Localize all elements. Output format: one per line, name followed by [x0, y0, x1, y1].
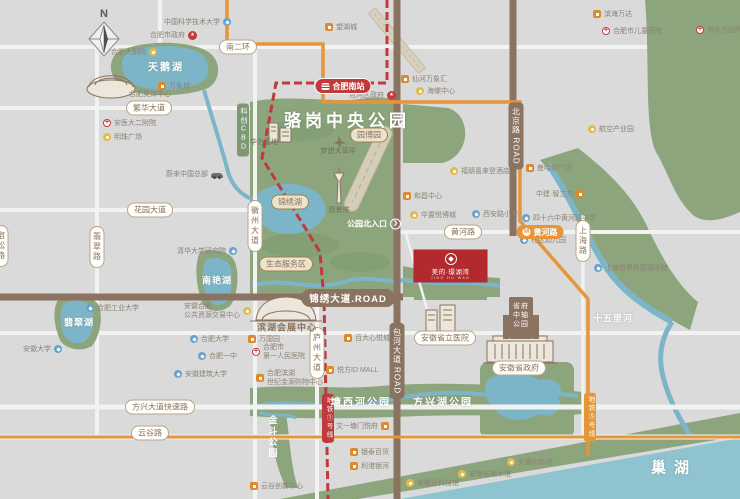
yellow-poi-icon	[406, 479, 414, 487]
hosp-poi-icon	[103, 119, 111, 127]
label-dream-lawn: 梦想大草坪	[321, 146, 356, 156]
orange-poi-icon	[403, 192, 411, 200]
orange-poi-icon	[248, 335, 256, 343]
government-building-sketch	[483, 336, 557, 363]
blue-poi-icon	[190, 335, 198, 343]
badge-baohe-avenue: 包河大道 ROAD	[390, 323, 405, 399]
poi-anhui-innovation-museum: 安徽创新馆	[507, 457, 553, 467]
hosp-poi-icon	[602, 27, 610, 35]
badge-yungu-road: 云谷路	[131, 426, 169, 441]
yellow-poi-icon	[450, 167, 458, 175]
poi-mingzhu-square: 明珠广场	[103, 132, 142, 142]
poi-boe-hospital: 京东方医院	[696, 25, 740, 35]
badge-metro-line5: 地铁⑤号线	[584, 393, 596, 442]
blue-poi-icon	[54, 345, 62, 353]
hosp-poi-icon	[696, 26, 704, 34]
label-tangxihe-park: 塘西河公园	[331, 394, 391, 409]
badge-fanhua-avenue: 繁华大道	[126, 101, 172, 116]
badge-hefei-south-station: 合肥南站	[315, 78, 372, 94]
yellow-poi-icon	[149, 48, 157, 56]
poi-baida-xinyuecheng: 百大心悦城	[344, 333, 390, 343]
hosp-poi-icon	[252, 348, 260, 356]
poi-public-resource-center: 安徽合肥公共资源交易中心	[184, 302, 251, 320]
poi-ustc: 中国科学技术大学	[164, 17, 231, 27]
orange-poi-icon	[526, 164, 534, 172]
car-poi-icon	[211, 173, 223, 178]
poi-anhui-university: 安徽大学	[23, 344, 62, 354]
orange-poi-icon	[158, 82, 166, 90]
poi-binhu-shopping-mall: 合肥滨湖世纪金源购物中心	[256, 369, 323, 387]
poi-tsinghua-institute: 清华大学研究院	[177, 246, 237, 256]
orange-poi-icon	[350, 448, 358, 456]
poi-anhui-jianzhu-university: 安徽建筑大学	[174, 369, 227, 379]
label-feicuihu-lake: 翡翠湖	[64, 316, 94, 329]
poi-anhui-art-museum: 安徽省美术馆	[458, 469, 511, 479]
blue-poi-icon	[472, 210, 480, 218]
poi-hechang-center: 和昌中心	[403, 191, 442, 201]
project-name: 美的·璟湖湾	[432, 266, 470, 276]
poi-shanghai-foreign-language-school: 上海世界外国语学校	[594, 263, 668, 273]
poi-anhui-science-museum: 安徽省科技馆	[406, 478, 459, 488]
poi-anyi-2nd-hospital: 安医大二附院	[103, 118, 156, 128]
yellow-poi-icon	[243, 307, 251, 315]
orange-poi-icon	[250, 482, 258, 490]
project-logo-icon	[445, 253, 457, 265]
blue-poi-icon	[174, 370, 182, 378]
orange-poi-icon	[350, 462, 358, 470]
blue-poi-icon	[223, 18, 231, 26]
poi-yuefang-id-mall: 悦方ID MALL	[326, 365, 378, 375]
badge-feicui-road: 翡翠路	[90, 226, 105, 268]
badge-provincial-government: 安徽省政府	[492, 361, 546, 376]
orange-poi-icon	[326, 366, 334, 374]
poi-hefei-university: 合肥大学	[190, 334, 229, 344]
poi-wanghucheng: 望湖城	[325, 22, 357, 32]
badge-beijing-road: 北京路 ROAD	[509, 102, 524, 169]
badge-metro-huanghe-station: 黄河路	[517, 225, 564, 239]
orange-poi-icon	[325, 23, 333, 31]
poi-hefei-univ-of-tech: 合肥工业大学	[86, 303, 139, 313]
poi-children-hospital: 合肥市儿童医院	[602, 26, 662, 36]
compass-n-label: N	[84, 8, 124, 20]
orange-poi-icon	[256, 374, 264, 382]
badge-shanghai-road: 上海路	[576, 220, 591, 262]
poi-aviation-industry-park: 航空产业园	[588, 124, 634, 134]
badge-susong-road: 宿松路	[0, 225, 9, 267]
badge-huayuan-avenue: 花园大道	[127, 203, 173, 218]
poi-zhongjian-cube: 中建·智立方	[536, 189, 584, 199]
blue-poi-icon	[198, 352, 206, 360]
label-expo-center: 滨湖会展中心	[257, 321, 317, 334]
poi-ligang-galaxy: 利港银河	[350, 461, 389, 471]
yellow-poi-icon	[588, 125, 596, 133]
poi-hefei-government: 合肥市政府	[150, 30, 197, 40]
poi-nio-china-hq: 蔚来中国总部	[166, 169, 223, 179]
badge-kechuang-cbd: 科创CBD	[237, 104, 249, 157]
badge-huanghe-road: 黄河路	[444, 225, 482, 240]
label-shiwulihe-river: 十五里河	[593, 312, 633, 325]
badge-provincial-hospital: 安徽省立医院	[414, 331, 476, 346]
poi-mixc-mall: 万象城	[158, 81, 190, 91]
badge-eco-service-area: 生态服务区	[259, 257, 313, 272]
orange-poi-icon	[401, 75, 409, 83]
gov-poi-icon	[387, 91, 396, 100]
poi-yintai-department-store: 银泰百货	[350, 447, 389, 457]
badge-huizhou-avenue: 徽州大道	[248, 200, 263, 252]
compass: N	[84, 8, 124, 62]
badge-nanerhuan: 南二环	[219, 40, 257, 55]
gov-poi-icon	[188, 31, 197, 40]
poi-xian-road-primary-school: 西安路小学	[472, 209, 518, 219]
poi-no46-middle-school: 四十六中黄河路中学	[522, 213, 596, 223]
badge-fangxing-expressway: 方兴大道快速路	[125, 400, 195, 415]
poi-sheraton-hotel: 福朋喜来登酒店	[450, 166, 510, 176]
project-subtitle: JING HU WAN	[431, 276, 471, 280]
blue-poi-icon	[229, 247, 237, 255]
badge-jinxiu-lake: 锦绣湖	[271, 195, 309, 210]
label-tianehu-lake: 天鹅湖	[148, 59, 184, 74]
orange-poi-icon	[344, 334, 352, 342]
yellow-poi-icon	[103, 133, 111, 141]
label-viewing-tower: 观景塔	[329, 205, 350, 215]
label-chaohu-lake: 巢湖	[651, 457, 697, 478]
blue-poi-icon	[522, 214, 530, 222]
poi-first-peoples-hospital: 合肥市第一人民医院	[252, 343, 305, 361]
yellow-poi-icon	[507, 458, 515, 466]
poi-binhai-wanda: 滨海万达	[593, 9, 632, 19]
label-luogang-park-title: 骆岗中央公园	[284, 107, 410, 132]
label-jindou-park: 金斗公园	[267, 415, 280, 459]
orange-poi-icon	[381, 422, 389, 430]
label-fangxinghu-park: 方兴湖公园	[413, 394, 473, 409]
poi-hailuo-center: 海螺中心	[416, 86, 455, 96]
orange-poi-icon	[593, 10, 601, 18]
poi-xianhe-mixc: 仙河万象汇	[401, 74, 447, 84]
yellow-poi-icon	[416, 87, 424, 95]
label-north-entrance: 公园北入口	[347, 219, 401, 230]
orange-poi-icon	[576, 190, 584, 198]
poi-yungu-innovation-center: 云谷创新中心	[250, 481, 303, 491]
label-nanyanhu-lake: 南艳湖	[202, 274, 232, 287]
label-government-axis-park: 省府中轴公园	[513, 303, 529, 329]
compass-rose-icon	[88, 21, 120, 57]
yellow-poi-icon	[410, 211, 418, 219]
poi-hefei-no1-school: 合肥一中	[198, 351, 237, 361]
project-marker: 美的·璟湖湾 JING HU WAN	[414, 250, 487, 282]
blue-poi-icon	[594, 264, 602, 272]
location-map: 美的·璟湖湾 JING HU WAN N 南二环繁华大道花园大道黄河路方兴大道快…	[0, 0, 740, 499]
poi-huazhi-yuebocheng: 华置悦博城	[410, 210, 456, 220]
poi-wenyi-tangmen-yuefu: 文一塘门悦府	[336, 421, 389, 431]
blue-poi-icon	[86, 304, 94, 312]
poi-manhattan-plaza: 曼哈顿广场	[526, 163, 572, 173]
label-huawei-base: 华为基地	[250, 137, 278, 147]
badge-jinxiu-avenue: 锦绣大道.ROAD	[301, 289, 395, 307]
yellow-poi-icon	[458, 470, 466, 478]
